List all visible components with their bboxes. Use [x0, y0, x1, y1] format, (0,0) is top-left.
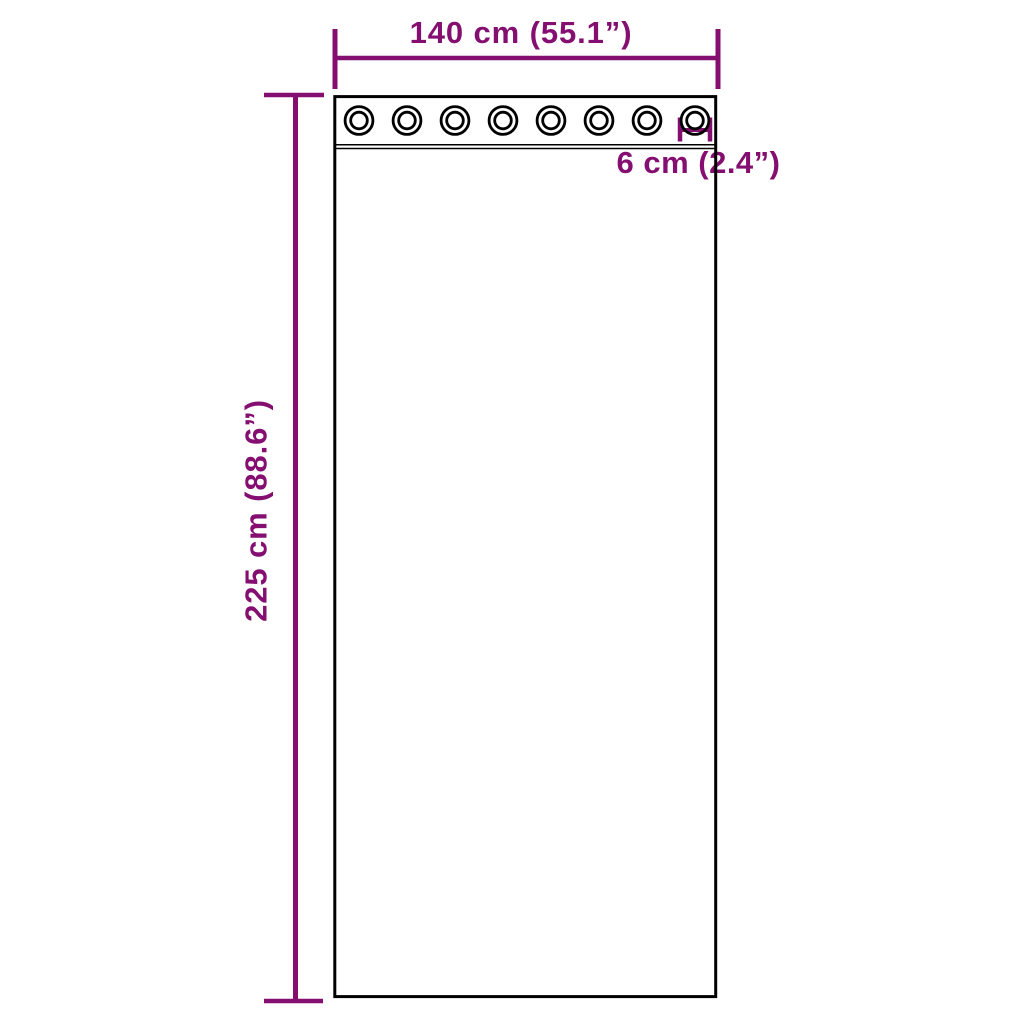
svg-text:140 cm (55.1”): 140 cm (55.1”) [410, 15, 633, 50]
svg-text:6 cm (2.4”): 6 cm (2.4”) [616, 145, 780, 180]
svg-text:225 cm (88.6”): 225 cm (88.6”) [239, 399, 274, 622]
